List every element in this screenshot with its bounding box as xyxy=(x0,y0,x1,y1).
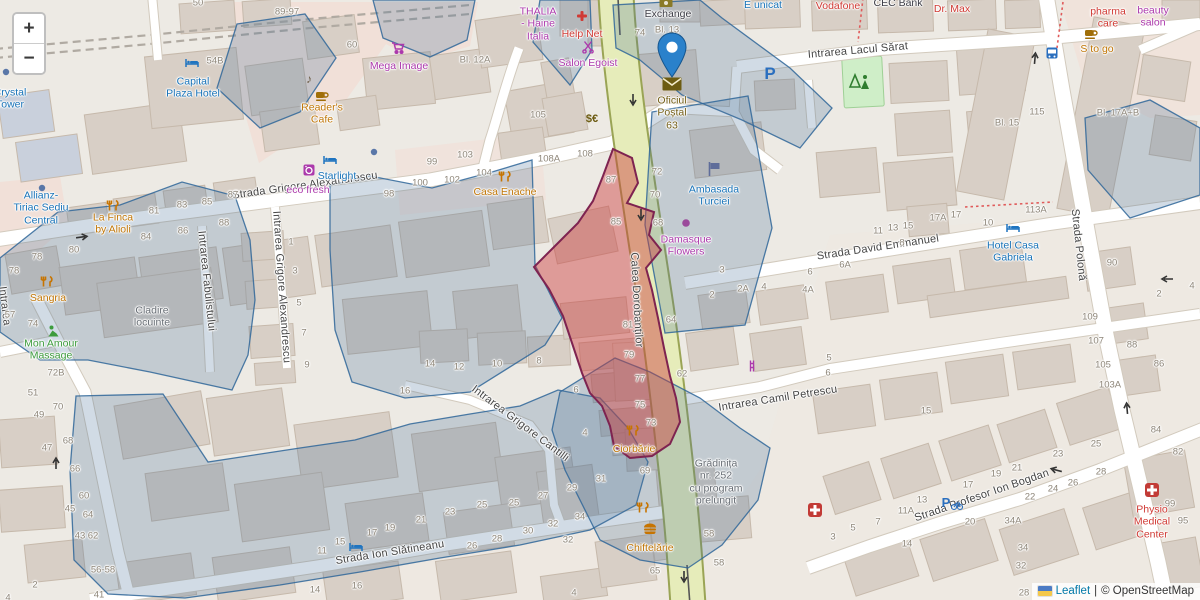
building xyxy=(889,61,949,104)
zoom-out-button[interactable]: − xyxy=(14,44,44,73)
building xyxy=(686,327,739,371)
building xyxy=(826,274,889,320)
boundary-overlay-polygon xyxy=(533,0,592,85)
zoom-in-button[interactable]: + xyxy=(14,14,44,44)
osm-attribution: © OpenStreetMap xyxy=(1101,585,1194,597)
building xyxy=(0,486,65,532)
building xyxy=(542,92,588,136)
building xyxy=(1005,0,1041,29)
building xyxy=(745,0,801,29)
building xyxy=(879,372,942,420)
building xyxy=(1137,54,1191,101)
construction-line xyxy=(965,202,1053,207)
building xyxy=(336,95,380,130)
building xyxy=(0,90,55,139)
map-canvas xyxy=(0,0,1200,600)
map-marker-pin[interactable] xyxy=(657,32,687,78)
building xyxy=(816,147,880,197)
building xyxy=(945,354,1008,404)
attribution-separator: | xyxy=(1094,585,1097,597)
building xyxy=(206,388,289,456)
building xyxy=(1013,344,1076,390)
attribution-bar: Leaflet | © OpenStreetMap xyxy=(1032,583,1200,600)
building xyxy=(883,157,957,211)
ukraine-flag-icon xyxy=(1038,586,1052,596)
building xyxy=(907,203,949,236)
building xyxy=(750,327,807,372)
building xyxy=(0,416,58,468)
playground-area xyxy=(842,56,885,108)
building xyxy=(947,0,996,31)
building xyxy=(16,134,83,182)
building xyxy=(756,285,808,325)
zoom-control: + − xyxy=(12,12,46,75)
building xyxy=(877,0,933,33)
boundary-overlay-polygon xyxy=(645,96,772,333)
leaflet-link[interactable]: Leaflet xyxy=(1056,585,1091,597)
building xyxy=(812,384,875,434)
map[interactable]: Strada Grigore AlexandrescuIntrarea Lacu… xyxy=(0,0,1200,600)
building xyxy=(895,110,953,156)
